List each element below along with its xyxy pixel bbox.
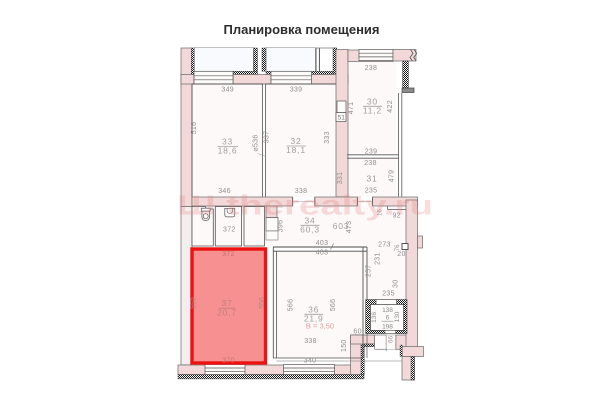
svg-text:479: 479 (389, 170, 396, 183)
svg-text:333: 333 (324, 131, 331, 144)
svg-text:337: 337 (264, 131, 271, 144)
svg-text:370: 370 (222, 358, 235, 365)
svg-text:556: 556 (259, 297, 266, 309)
svg-text:235: 235 (382, 291, 395, 298)
svg-text:331: 331 (337, 172, 344, 185)
svg-text:18,6: 18,6 (218, 146, 238, 156)
svg-text:238: 238 (365, 65, 378, 72)
svg-text:340: 340 (304, 357, 317, 364)
svg-text:130: 130 (394, 311, 401, 322)
svg-text:396: 396 (278, 220, 285, 233)
svg-text:20,7: 20,7 (217, 308, 237, 318)
svg-text:559: 559 (191, 297, 198, 309)
svg-text:20: 20 (397, 251, 405, 258)
svg-text:231: 231 (375, 252, 382, 265)
svg-text:338: 338 (304, 338, 317, 345)
svg-text:471: 471 (348, 102, 355, 115)
svg-text:18,1: 18,1 (286, 145, 306, 155)
svg-text:273: 273 (378, 242, 391, 249)
svg-text:403: 403 (316, 240, 329, 247)
svg-text:Планировка помещения: Планировка помещения (224, 22, 380, 37)
svg-text:60,3: 60,3 (300, 225, 320, 235)
svg-text:403: 403 (316, 250, 329, 257)
svg-text:31: 31 (366, 174, 377, 184)
svg-text:339: 339 (290, 87, 303, 94)
svg-text:Ш therealty.ru: Ш therealty.ru (177, 190, 433, 221)
svg-text:66: 66 (387, 336, 394, 344)
svg-text:422: 422 (387, 100, 394, 113)
svg-text:566: 566 (288, 299, 295, 312)
svg-text:372: 372 (222, 251, 235, 258)
svg-text:60: 60 (353, 329, 361, 336)
svg-text:372: 372 (223, 227, 236, 234)
svg-text:51: 51 (338, 115, 346, 122)
svg-text:150: 150 (341, 339, 348, 352)
svg-text:⌀536: ⌀536 (252, 134, 259, 151)
svg-text:138: 138 (382, 307, 393, 314)
svg-text:239: 239 (365, 149, 378, 156)
svg-text:198: 198 (382, 324, 393, 331)
svg-text:257: 257 (366, 265, 373, 278)
svg-text:516: 516 (191, 122, 198, 135)
svg-text:238: 238 (364, 160, 377, 167)
svg-text:6: 6 (386, 315, 390, 322)
svg-text:37: 37 (221, 298, 232, 308)
svg-text:В = 3,50: В = 3,50 (306, 322, 334, 331)
svg-text:473: 473 (346, 221, 353, 234)
svg-text:11,2: 11,2 (363, 106, 382, 116)
svg-text:30: 30 (392, 280, 399, 288)
svg-text:566: 566 (330, 299, 337, 312)
svg-text:349: 349 (221, 87, 234, 94)
svg-text:136: 136 (371, 312, 378, 323)
